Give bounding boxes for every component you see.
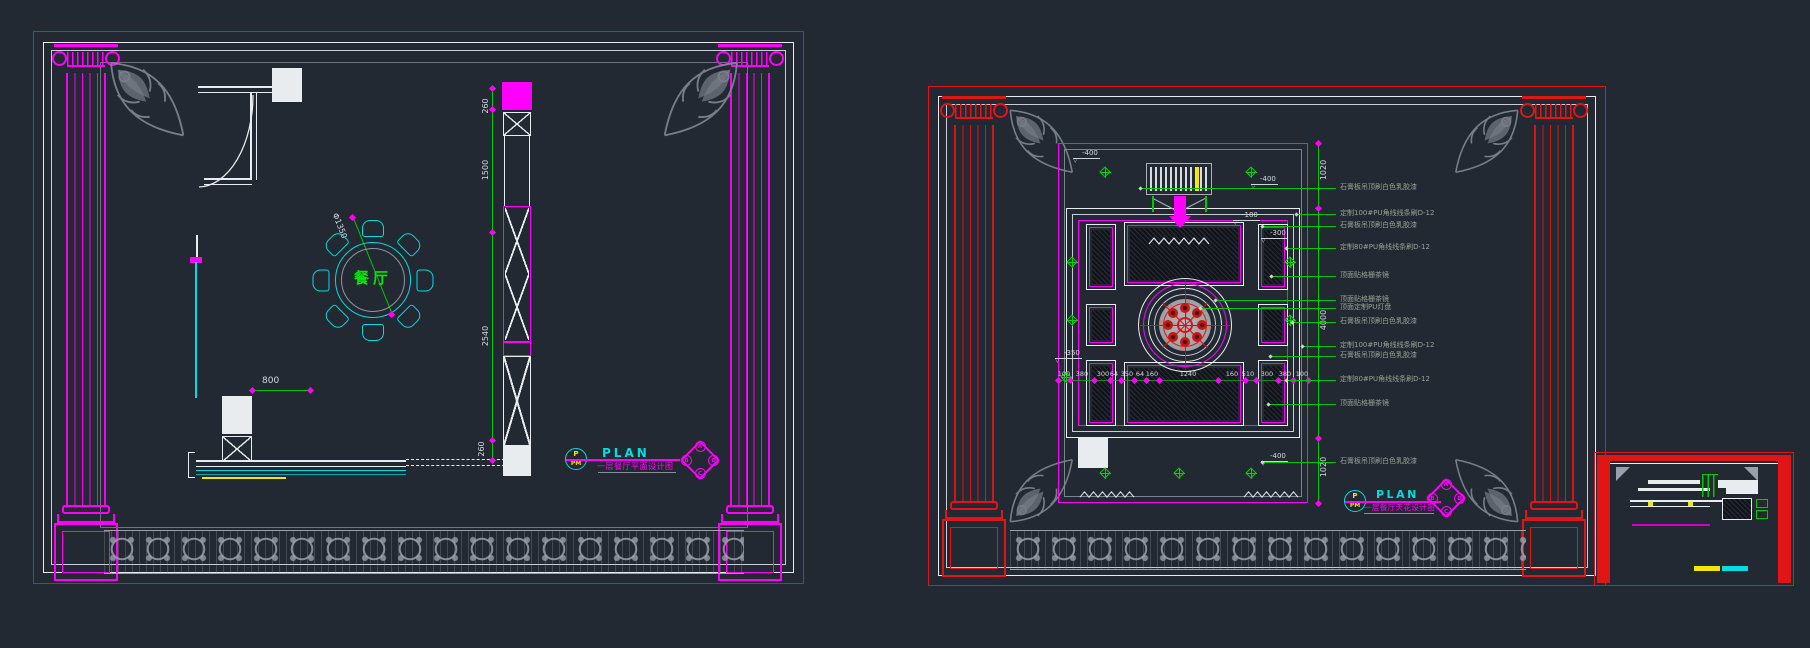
dim-label: 300 [1097,371,1109,378]
leader-line [1286,380,1336,381]
legend-bar-cyan [1722,566,1748,571]
red-top-bar [1597,455,1791,461]
dim-label: 2540 [482,326,490,346]
dim-label: 260 [478,441,486,456]
leader-line [1296,214,1336,215]
dim-label: 64 [1136,371,1144,378]
downlight-icon [1285,257,1296,268]
downlight-icon [1067,257,1078,268]
leader-line [1140,188,1336,189]
leader-line [1286,248,1336,249]
lamp-dot [1648,502,1653,506]
dim-label: 100 [1296,371,1308,378]
green-box [1756,510,1768,519]
leader-line [1270,356,1336,357]
dim-label: 1500 [482,160,490,180]
moulding-profile [1718,480,1758,488]
dim-label: 380 [1076,371,1088,378]
downlight-icon [1174,468,1185,479]
red-column-bar [1597,455,1610,583]
dim-label: 510 [1242,371,1254,378]
leader-line [1262,462,1336,463]
leader-line [1292,322,1336,323]
annotation-label: 顶面贴格栅茶镜 [1340,272,1389,279]
dim-label: 380 [1279,371,1291,378]
downlight-icon [1100,468,1111,479]
green-box [1756,499,1768,508]
elevation-mark: -400 [1261,453,1288,462]
annotation-label: 顶面定制PU灯盘 [1340,304,1391,311]
dim-label: 100 [1058,371,1070,378]
annotation-label: 顶面贴格栅茶镜 [1340,400,1389,407]
annotation-label: 石膏板吊顶刷白色乳胶漆 [1340,318,1417,325]
legend-bar-yellow [1694,566,1720,571]
corner-triangle-icon [1616,467,1630,481]
dim-label: 4000 [1320,310,1328,330]
chair [417,269,434,291]
dim-label: 300 [1261,371,1273,378]
dim-label: 1020 [1320,160,1328,180]
dim-label: 260 [482,98,490,113]
annotation-label: 石膏板吊顶刷白色乳胶漆 [1340,222,1417,229]
downlight-icon [1285,315,1296,326]
dim-label: 1240 [1180,371,1197,378]
leader-line [1302,346,1336,347]
downlight-icon [1067,315,1078,326]
dim-label: 350 [1121,371,1133,378]
annotation-label: 顶面贴格栅茶镜 [1340,296,1389,303]
red-column-bar [1778,455,1791,583]
elevation-mark: -300 [1261,230,1288,239]
elevation-mark: -350 [1055,350,1082,359]
dim-label: 1020 [1320,457,1328,477]
leader-comb [1702,474,1718,497]
annotation-label: 定制80#PU角线线条刷D-12 [1340,376,1430,383]
frame-white-line [1600,463,1788,464]
moulding-line [1630,500,1722,502]
moulding-line [1648,480,1700,484]
dim-label: 160 [1226,371,1238,378]
annotation-label: 石膏板吊顶刷白色乳胶漆 [1340,352,1417,359]
annotation-label: 定制100#PU角线线条刷D-12 [1340,210,1434,217]
lamp-dot [1688,502,1693,506]
annotation-label: 石膏板吊顶刷白色乳胶漆 [1340,458,1417,465]
cad-viewport: 800 Φ1350 餐厅 P PM PLAN 一层餐厅平面设计图 A B D C [0,0,1810,648]
leader-line [1215,300,1336,301]
section-detail-sheet[interactable] [0,0,1810,648]
chair [362,220,384,237]
leader-line [1271,276,1336,277]
leader-line [1262,226,1336,227]
dim-label: 64 [1110,371,1118,378]
elevation-mark: -400 [1073,150,1100,159]
annotation-label: 定制80#PU角线线条刷D-12 [1340,244,1430,251]
leader-line [1268,404,1336,405]
magenta-line [1632,524,1710,526]
elevation-mark: -180 [1233,212,1260,221]
moulding-profile [1726,488,1758,494]
chair [313,269,330,291]
moulding-line [1630,506,1710,507]
chair [362,324,384,341]
downlight-icon [1246,468,1257,479]
annotation-label: 石膏板吊顶刷白色乳胶漆 [1340,184,1417,191]
dim-label: 160 [1146,371,1158,378]
section-box [1722,498,1752,520]
elevation-mark: -400 [1251,176,1278,185]
leader-line [1200,308,1336,309]
moulding-line [1638,488,1710,491]
annotation-label: 定制100#PU角线线条刷D-12 [1340,342,1434,349]
downlight-icon [1100,167,1111,178]
corner-triangle-icon [1744,467,1758,481]
